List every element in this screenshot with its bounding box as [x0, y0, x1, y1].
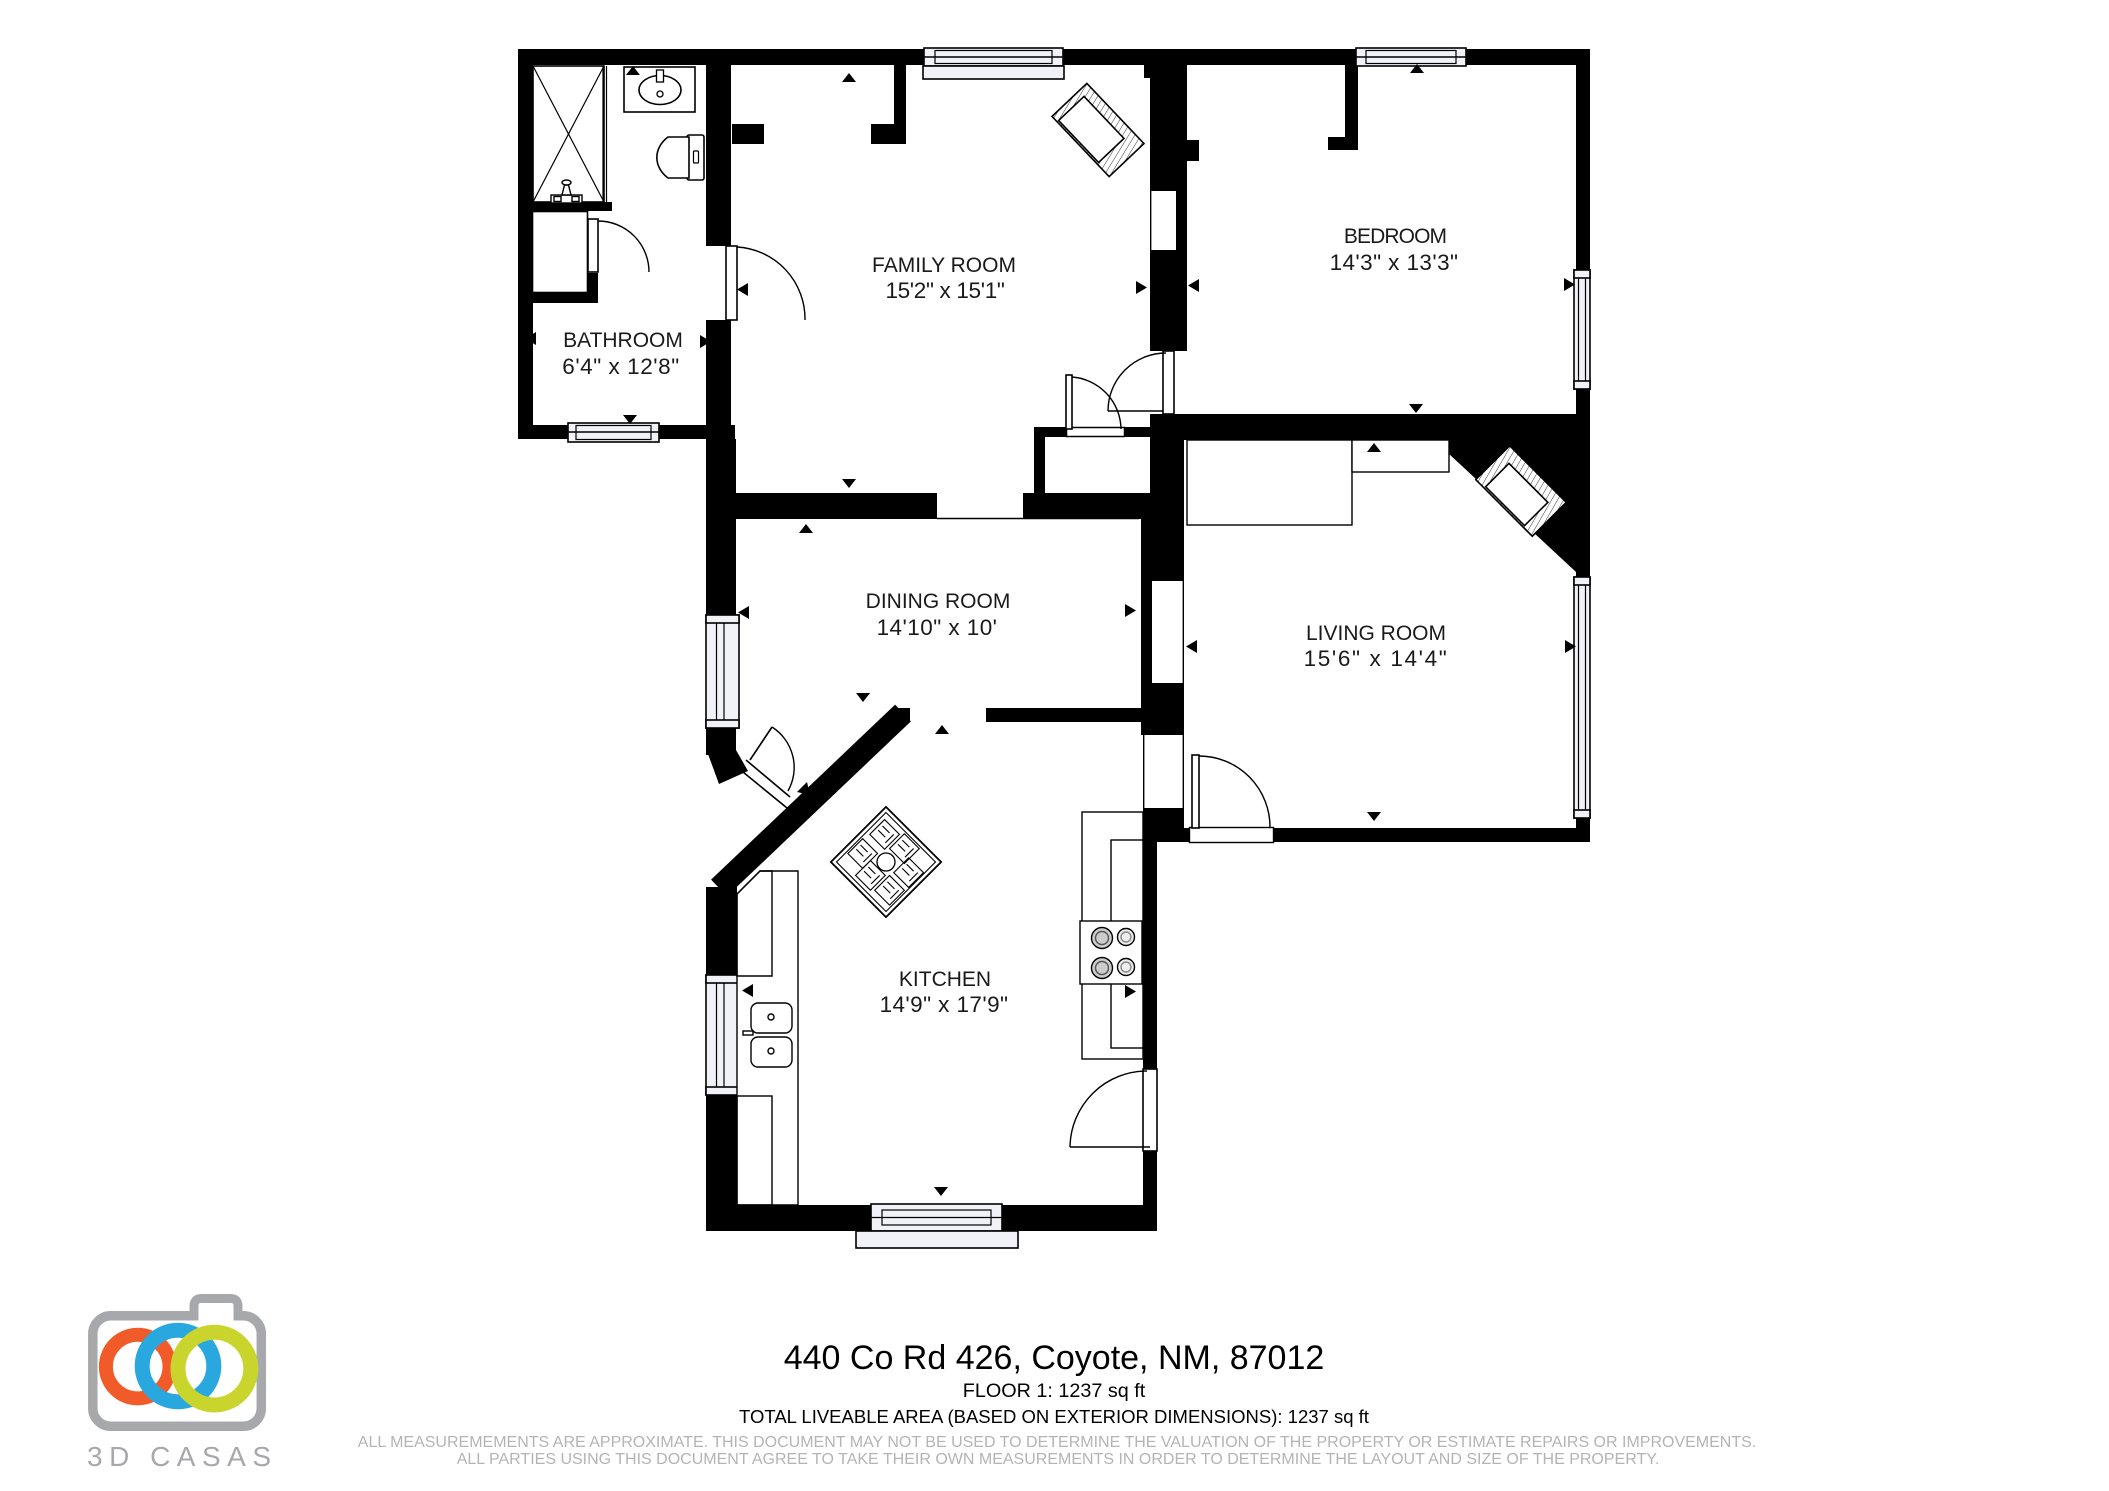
- svg-text:15'2" x 15'1": 15'2" x 15'1": [885, 278, 1004, 303]
- svg-text:FAMILY ROOM: FAMILY ROOM: [872, 254, 1016, 277]
- svg-text:LIVING ROOM: LIVING ROOM: [1306, 622, 1446, 645]
- svg-text:KITCHEN: KITCHEN: [899, 968, 991, 991]
- svg-text:3D CASAS: 3D CASAS: [87, 1441, 278, 1472]
- svg-text:DINING ROOM: DINING ROOM: [866, 590, 1011, 613]
- svg-text:ALL MEASUREMEMENTS ARE APPROXI: ALL MEASUREMEMENTS ARE APPROXIMATE. THIS…: [358, 1434, 1756, 1451]
- svg-text:440 Co Rd 426, Coyote, NM, 870: 440 Co Rd 426, Coyote, NM, 87012: [784, 1339, 1325, 1377]
- svg-text:TOTAL LIVEABLE AREA (BASED ON: TOTAL LIVEABLE AREA (BASED ON EXTERIOR D…: [739, 1406, 1369, 1427]
- svg-text:14'9" x 17'9": 14'9" x 17'9": [880, 992, 1009, 1017]
- svg-text:BEDROOM: BEDROOM: [1344, 225, 1446, 248]
- svg-text:14'3" x 13'3": 14'3" x 13'3": [1330, 250, 1459, 275]
- svg-text:FLOOR 1: 1237 sq ft: FLOOR 1: 1237 sq ft: [963, 1380, 1146, 1402]
- svg-text:ALL PARTIES USING THIS DOCUMEN: ALL PARTIES USING THIS DOCUMENT AGREE TO…: [457, 1451, 1660, 1468]
- svg-text:BATHROOM: BATHROOM: [563, 329, 683, 352]
- svg-text:15'6" x 14'4": 15'6" x 14'4": [1304, 646, 1449, 671]
- svg-text:6'4" x 12'8": 6'4" x 12'8": [562, 354, 680, 379]
- svg-text:14'10" x 10': 14'10" x 10': [877, 615, 998, 640]
